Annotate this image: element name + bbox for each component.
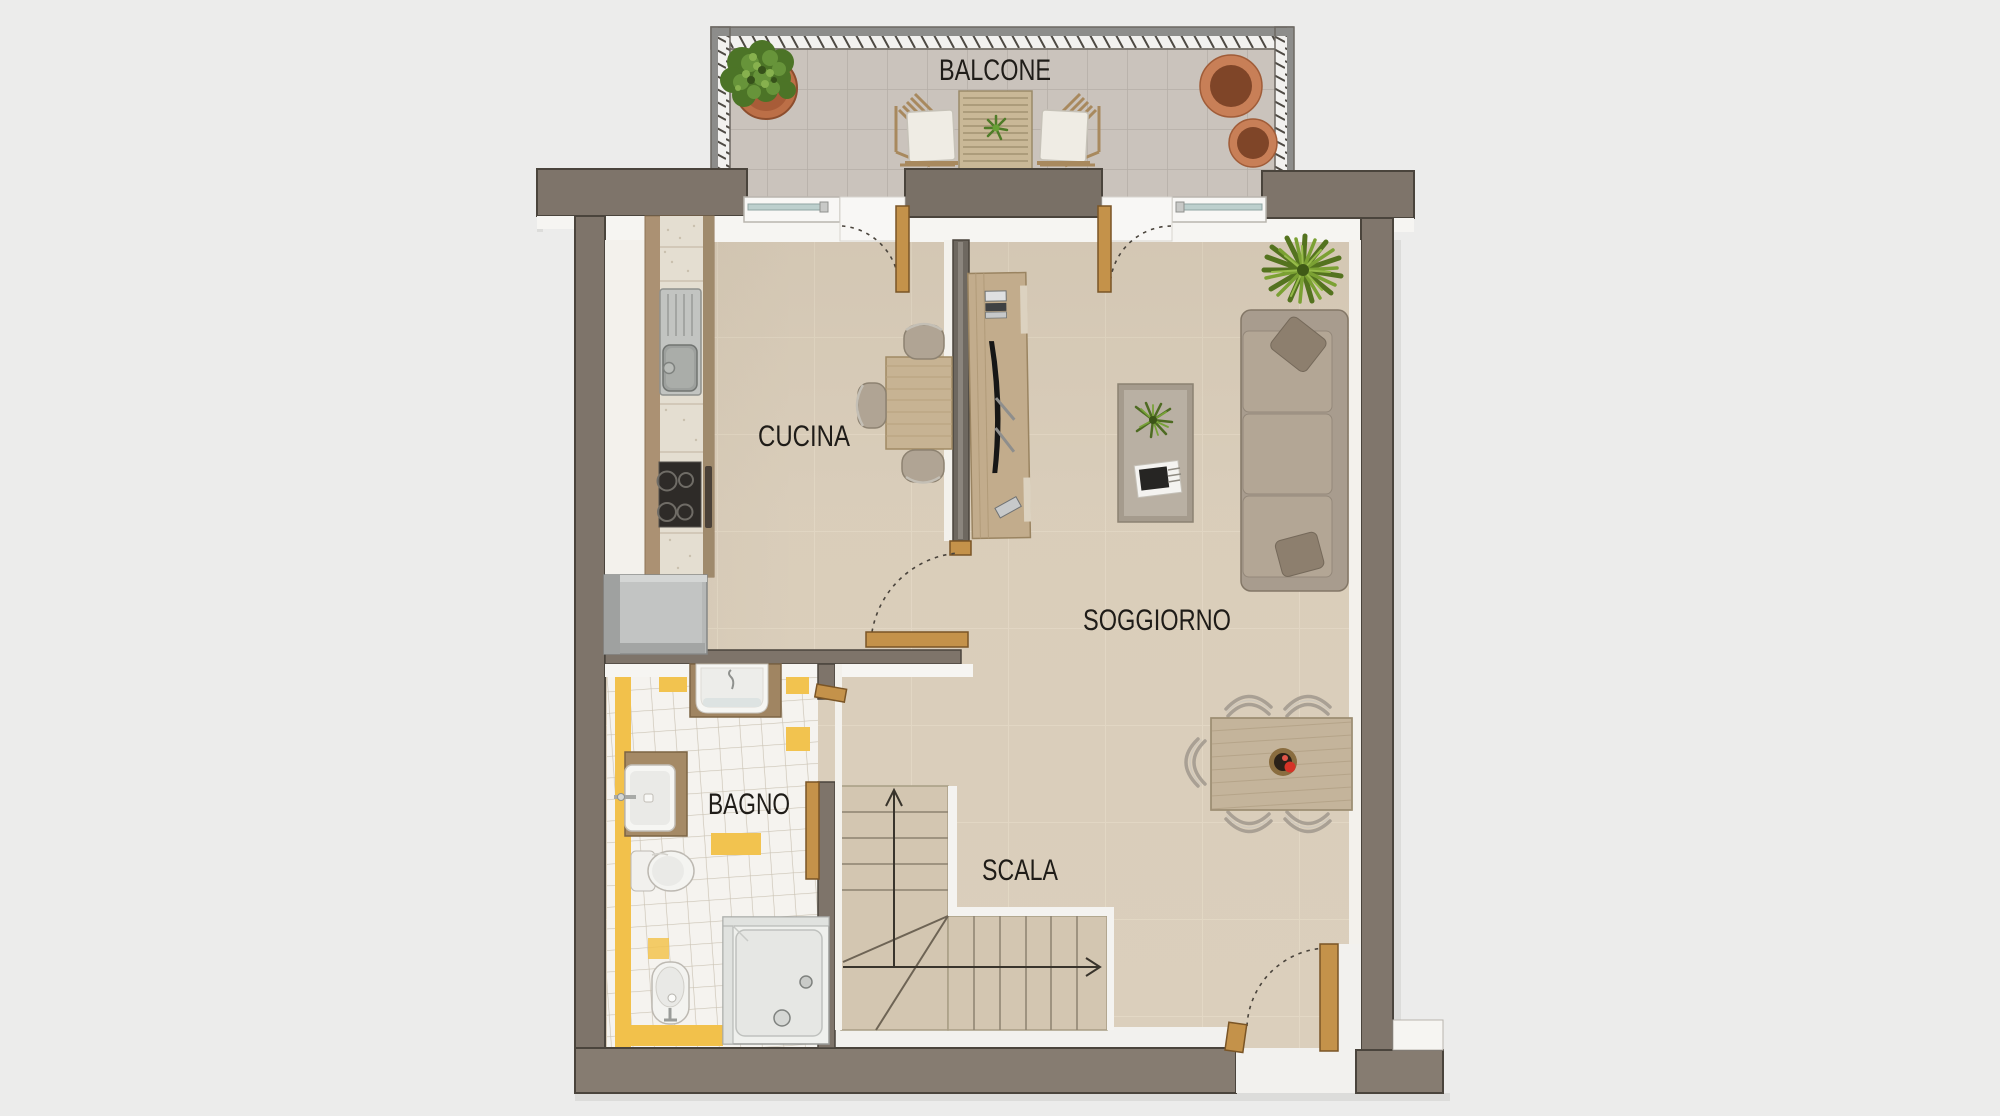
svg-text:CUCINA: CUCINA bbox=[758, 420, 850, 453]
svg-text:SCALA: SCALA bbox=[982, 854, 1058, 887]
svg-text:BALCONE: BALCONE bbox=[939, 54, 1051, 87]
svg-text:BAGNO: BAGNO bbox=[708, 788, 790, 821]
svg-text:SOGGIORNO: SOGGIORNO bbox=[1083, 604, 1231, 637]
